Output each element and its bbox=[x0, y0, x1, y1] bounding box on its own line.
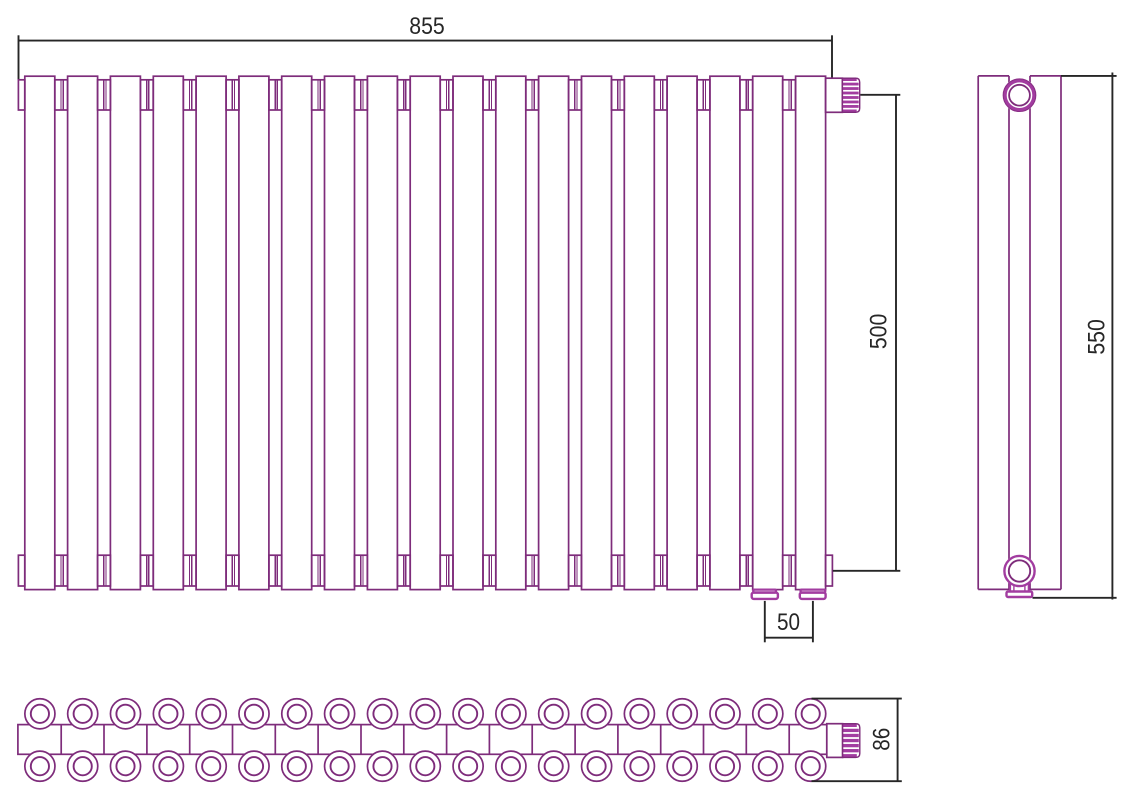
svg-text:855: 855 bbox=[409, 13, 445, 40]
svg-text:86: 86 bbox=[869, 728, 896, 751]
svg-text:500: 500 bbox=[866, 314, 893, 350]
svg-text:550: 550 bbox=[1083, 319, 1110, 355]
svg-text:50: 50 bbox=[777, 609, 800, 636]
